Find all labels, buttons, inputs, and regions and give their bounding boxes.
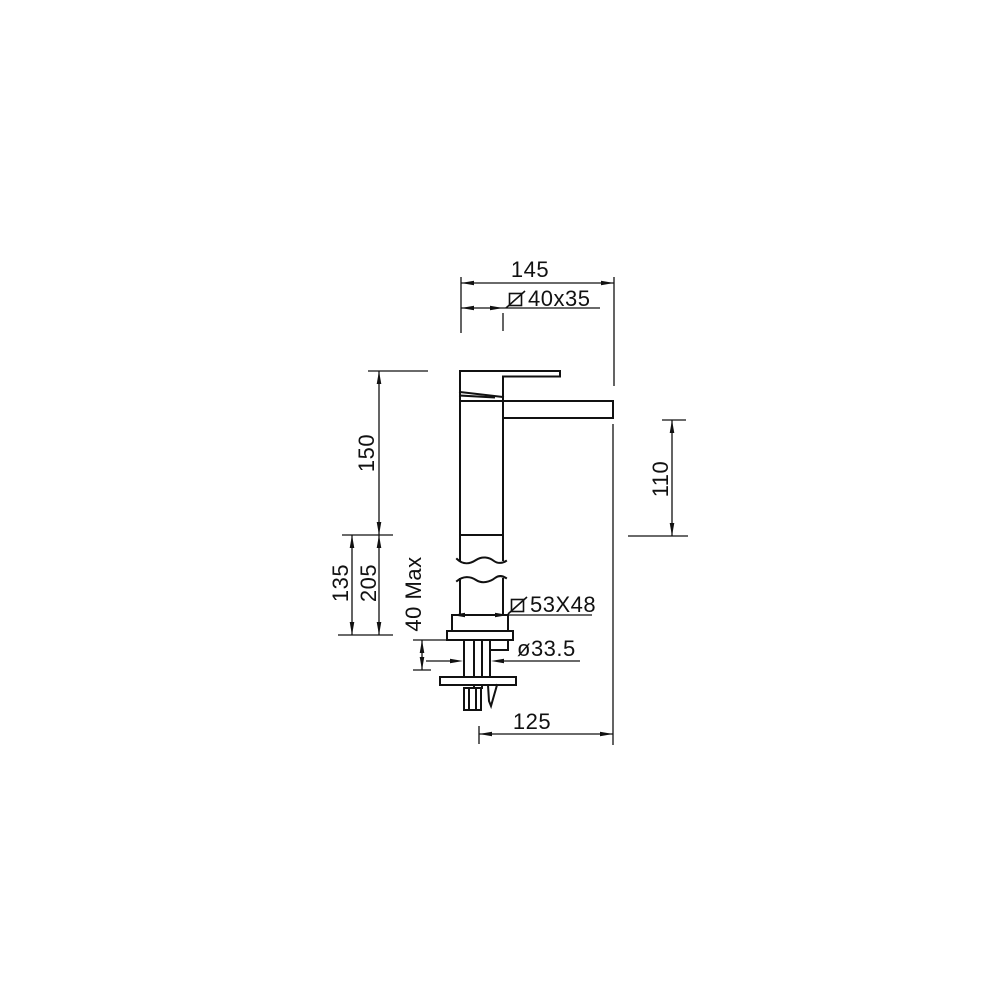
- mounting-nut: [464, 688, 481, 710]
- dim-205-arrow-up: [377, 535, 382, 548]
- dim-110-arrow-up: [670, 420, 675, 433]
- dim-145-arrow-left: [461, 281, 474, 286]
- dim-53x48-arrow-left: [452, 613, 465, 618]
- label-spout-reach: 125: [513, 709, 551, 734]
- dim-40x35-arrow-right: [490, 306, 503, 311]
- label-overall-width: 145: [511, 257, 549, 282]
- dim-205-arrow-down: [377, 622, 382, 635]
- break-line-lower: [457, 576, 506, 582]
- dim-135-arrow-down: [350, 622, 355, 635]
- dim-40max-arrow-down: [420, 657, 425, 670]
- label-base-section: 53X48: [530, 592, 596, 617]
- label-deck-thickness-max: 40 Max: [401, 556, 426, 631]
- dim-150-arrow-down: [377, 522, 382, 535]
- hose-flap: [488, 685, 497, 706]
- dim-40x35-arrow-left: [461, 306, 474, 311]
- label-spout-section: 40x35: [528, 286, 590, 311]
- label-outlet-height: 110: [648, 461, 673, 498]
- drawing-canvas: 145 40x35 150 135 205 40 Max 110 53X48 ø…: [0, 0, 1000, 1000]
- dim-33-5-arrow-left-tip: [491, 659, 504, 664]
- label-height-to-rim: 150: [354, 434, 379, 472]
- dim-150-arrow-up: [377, 371, 382, 384]
- lock-washer-plate: [440, 677, 516, 685]
- dim-40max-arrow-up: [420, 640, 425, 653]
- dim-110-arrow-down: [670, 523, 675, 536]
- square-section-symbol-40x35: [506, 291, 525, 308]
- square-section-symbol-53x48: [508, 597, 527, 614]
- dim-145-arrow-right: [601, 281, 614, 286]
- dim-135-arrow-up: [350, 535, 355, 548]
- dim-125-arrow-left: [479, 732, 492, 737]
- label-total-height: 205: [356, 564, 381, 602]
- dim-125-arrow-right: [600, 732, 613, 737]
- break-line-upper: [457, 557, 506, 563]
- faucet-technical-drawing: 145 40x35 150 135 205 40 Max 110 53X48 ø…: [0, 0, 1000, 1000]
- dim-53x48-arrow-right: [495, 613, 508, 618]
- dimension-lines: [338, 277, 688, 745]
- label-rim-offset: 135: [328, 564, 353, 602]
- dim-33-5-arrow-right-tip: [450, 659, 463, 664]
- label-shank-diameter: ø33.5: [517, 636, 576, 661]
